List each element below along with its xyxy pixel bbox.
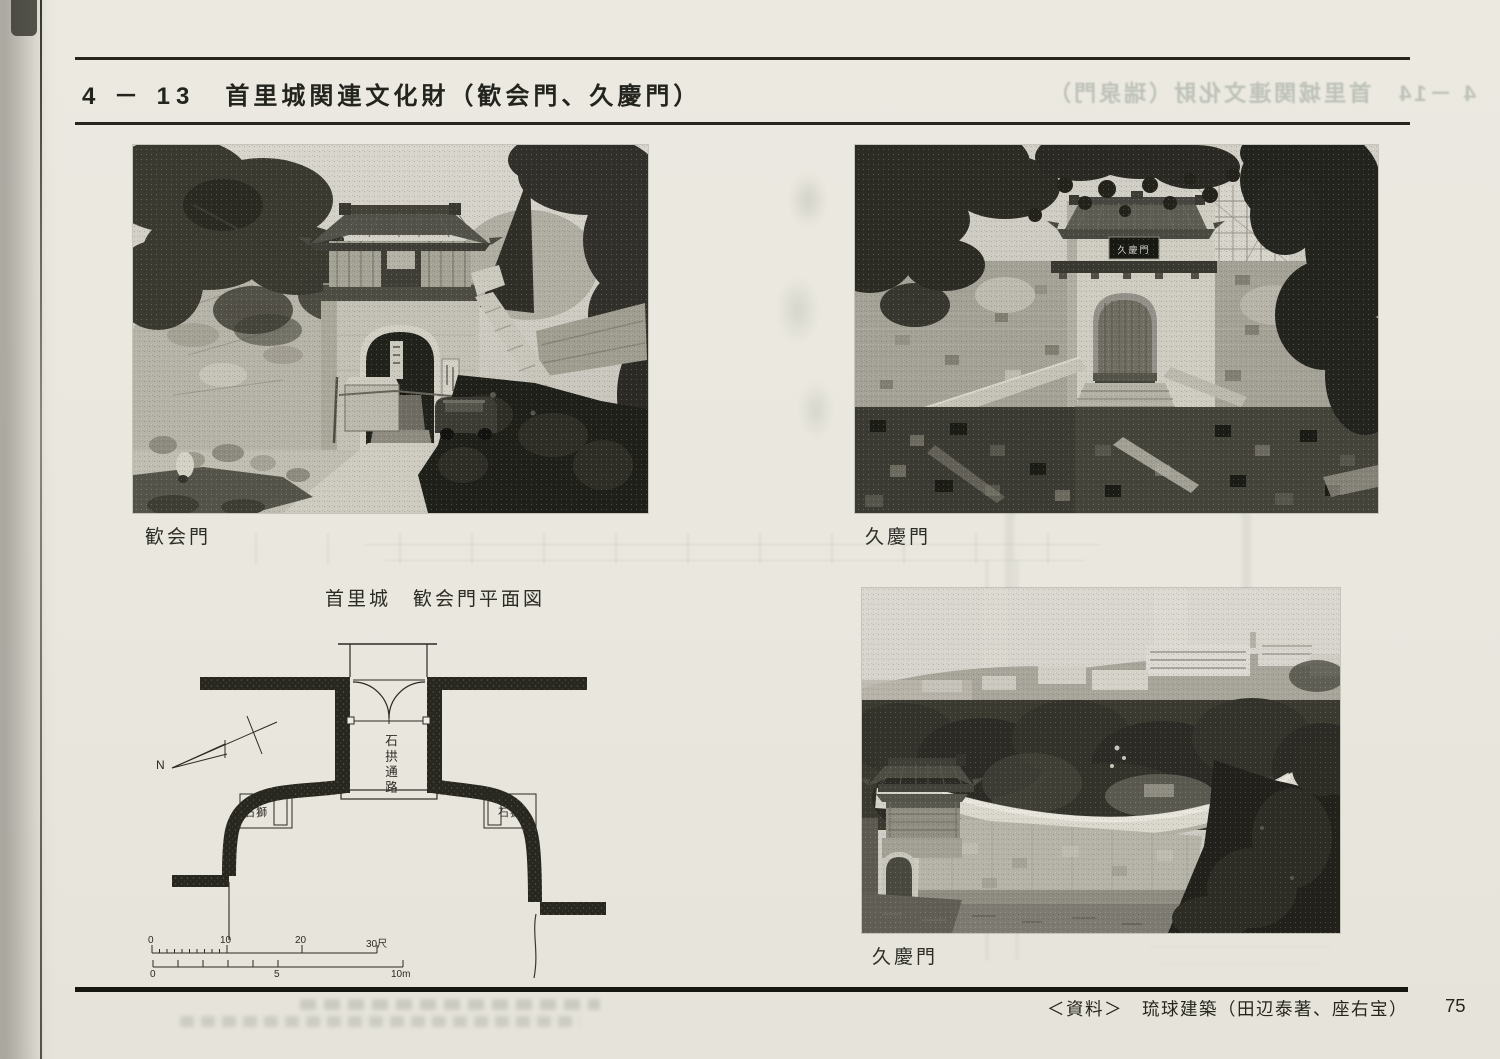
- page-header: 4 － 13首里城関連文化財（歓会門、久慶門）: [82, 76, 701, 111]
- scale-m-5: 5: [274, 969, 280, 980]
- bleedthrough-ruler: [255, 534, 1100, 564]
- plan-gatehouse: [338, 644, 437, 677]
- bleedthrough-scale: [1150, 938, 1340, 978]
- caption-kyukeimon-view: 久慶門: [872, 942, 938, 969]
- header-rule-top: [75, 57, 1410, 60]
- kankaimon-photo: [133, 145, 648, 513]
- book-spine-crease: [40, 0, 42, 1059]
- bleedthrough-footer-line1: [300, 999, 600, 1010]
- header-rule-bottom: [75, 122, 1410, 125]
- plan-passage-label: 石拱通路: [381, 734, 400, 796]
- plan-title: 首里城 歓会門平面図: [325, 584, 545, 611]
- scale-shaku-20: 20: [295, 935, 306, 946]
- page-title: 首里城関連文化財（歓会門、久慶門）: [225, 83, 701, 110]
- kyukeimon-overview-photo: [862, 588, 1340, 933]
- scale-shaku-30: 30尺: [366, 935, 387, 950]
- source-credit: ＜資料＞ 琉球建築（田辺泰著、座右宝）: [1000, 996, 1408, 1021]
- scale-m-10: 10m: [391, 969, 410, 980]
- footer-rule: [75, 987, 1408, 992]
- kyukeimon-front-photo: 久慶門: [855, 145, 1378, 513]
- kyukeimon-front-photo-image: 久慶門: [855, 145, 1378, 513]
- page-number: 75: [1445, 995, 1466, 1017]
- caption-kankaimon: 歓会門: [145, 522, 211, 549]
- north-arrow: [172, 716, 277, 768]
- plan-north-label: N: [156, 758, 165, 772]
- kankaimon-photo-image: [133, 145, 648, 513]
- caption-kyukeimon-front: 久慶門: [865, 522, 931, 549]
- bleedthrough-footer-line2: [180, 1016, 580, 1027]
- floor-plan-drawing: [150, 618, 630, 985]
- section-number: 4 － 13: [82, 83, 195, 110]
- kankaimon-floor-plan: 石拱通路 石獅 石獅 N 0 10 20 30尺 0 5 10m: [150, 618, 630, 985]
- kyukeimon-overview-photo-image: [862, 588, 1340, 933]
- scale-shaku-0: 0: [148, 935, 154, 946]
- bleedthrough-header-text: 4 －14 首里城関連文化財（瑞泉門）: [1058, 76, 1476, 108]
- plan-doors: [347, 680, 430, 724]
- book-spine-top-shadow: [11, 0, 37, 36]
- plan-thin-lines: [229, 882, 536, 978]
- scale-m-0: 0: [150, 969, 156, 980]
- scale-shaku-10: 10: [220, 935, 231, 946]
- plan-lion-right-label: 石獅: [498, 804, 522, 820]
- book-spine-shadow: [0, 0, 58, 1059]
- bleedthrough-marks: [768, 150, 856, 470]
- plan-lion-left-label: 石獅: [244, 804, 268, 820]
- scanned-document-page: 4 － 13首里城関連文化財（歓会門、久慶門） 4 －14 首里城関連文化財（瑞…: [0, 0, 1500, 1059]
